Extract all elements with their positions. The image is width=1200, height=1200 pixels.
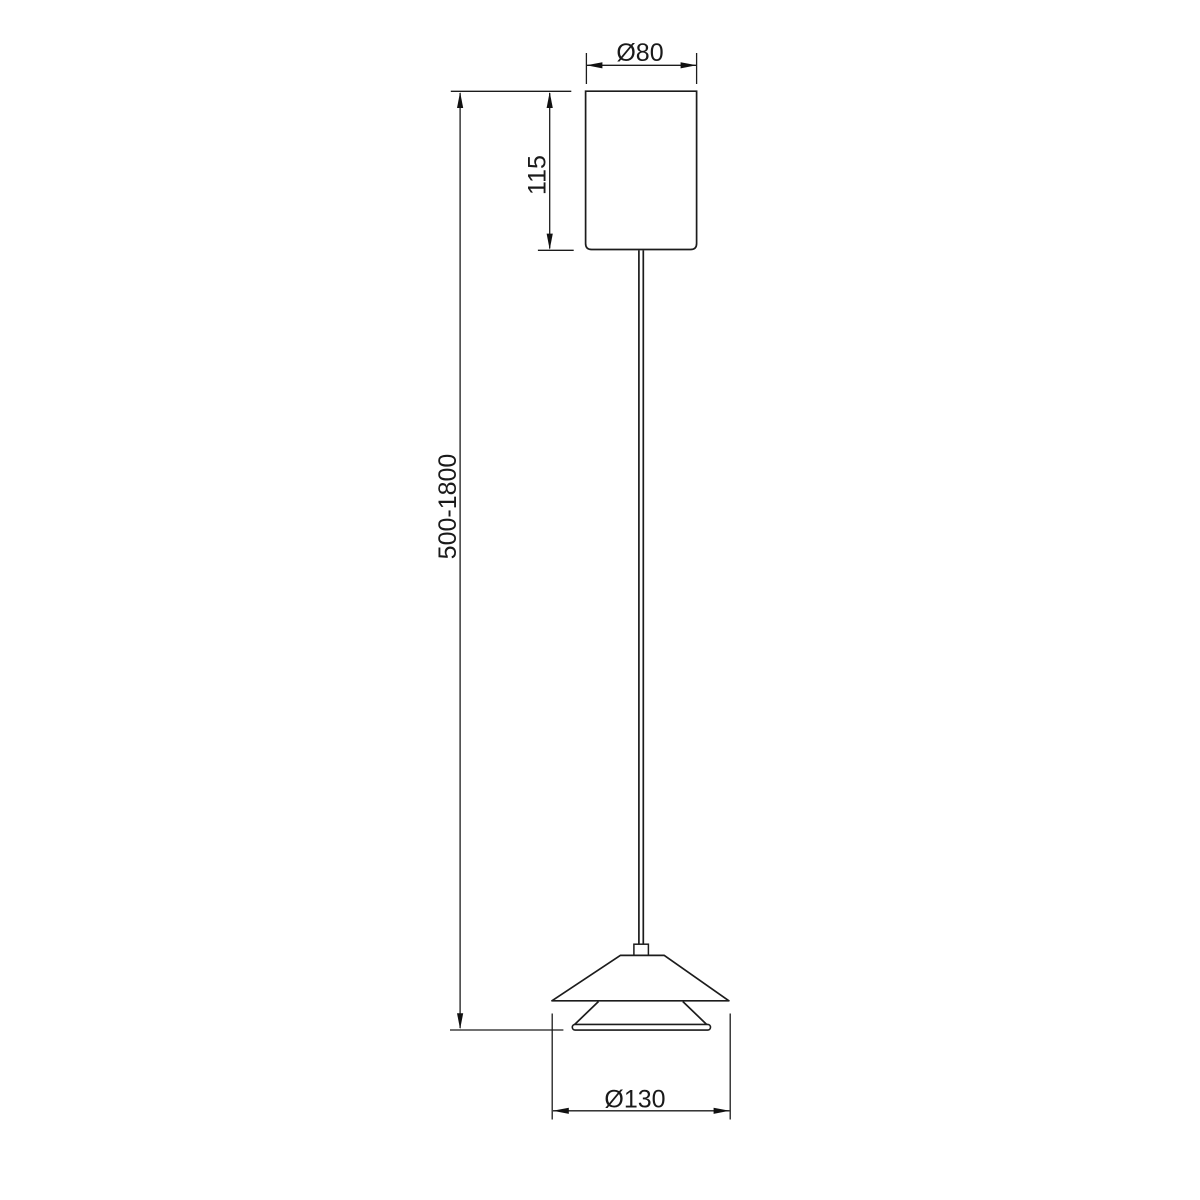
svg-text:115: 115 [524, 155, 552, 195]
svg-text:500-1800: 500-1800 [434, 454, 462, 560]
svg-text:Ø130: Ø130 [604, 1086, 665, 1114]
svg-text:Ø80: Ø80 [616, 39, 663, 67]
